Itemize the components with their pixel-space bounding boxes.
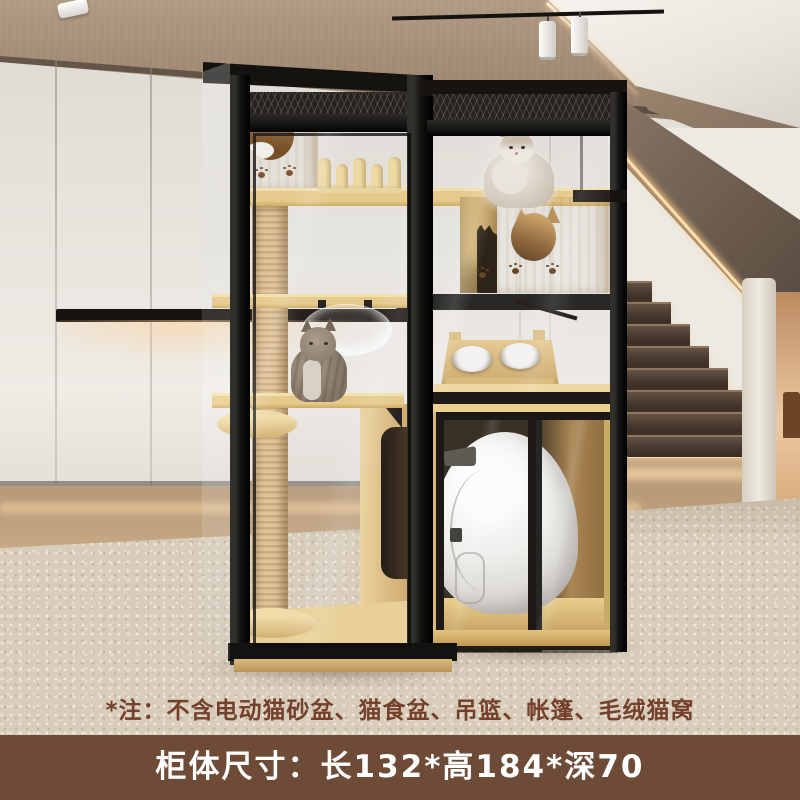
- exclusion-note: *注：不含电动猫砂盆、猫食盆、吊篮、帐篷、毛绒猫窝: [0, 694, 800, 728]
- frame-post-left: [230, 75, 250, 665]
- stair-step: [618, 346, 709, 368]
- door-glass-reflection: [444, 420, 534, 644]
- stair-pillar: [742, 278, 776, 508]
- wood-base: [234, 659, 452, 672]
- door-glass-reflection: [536, 420, 616, 642]
- chair-silhouette: [783, 392, 800, 438]
- dimension-banner: 柜体尺寸：长132*高184*深70: [0, 735, 800, 800]
- product-scene: *注：不含电动猫砂盆、猫食盆、吊篮、帐篷、毛绒猫窝 柜体尺寸：长132*高184…: [0, 0, 800, 800]
- cabinet-top-rail: [433, 392, 618, 404]
- track-light-cylinder: [539, 21, 556, 60]
- wall-panel-seam: [55, 56, 57, 484]
- stair-step: [618, 368, 728, 390]
- track-light-cylinder: [571, 17, 588, 56]
- mesh-ceiling: [433, 94, 614, 122]
- front-glass-panel: [250, 132, 407, 642]
- cabinet-glass-door: [436, 412, 542, 652]
- stair-step: [618, 390, 746, 412]
- side-glass-panel: [202, 60, 232, 664]
- wall-panel-seam: [150, 58, 152, 486]
- frame-post-right: [610, 92, 627, 652]
- stair-step: [618, 324, 690, 346]
- stair-step: [618, 412, 758, 435]
- frame-front-bar: [230, 114, 433, 132]
- front-glass-panel: [433, 136, 610, 392]
- cabinet-bottom-rail: [433, 630, 618, 646]
- frame-front-bar: [427, 120, 627, 136]
- mesh-ceiling: [250, 92, 407, 116]
- dimension-banner-text: 柜体尺寸：长132*高184*深70: [0, 735, 800, 800]
- cabinet-base-shadow: [433, 646, 618, 653]
